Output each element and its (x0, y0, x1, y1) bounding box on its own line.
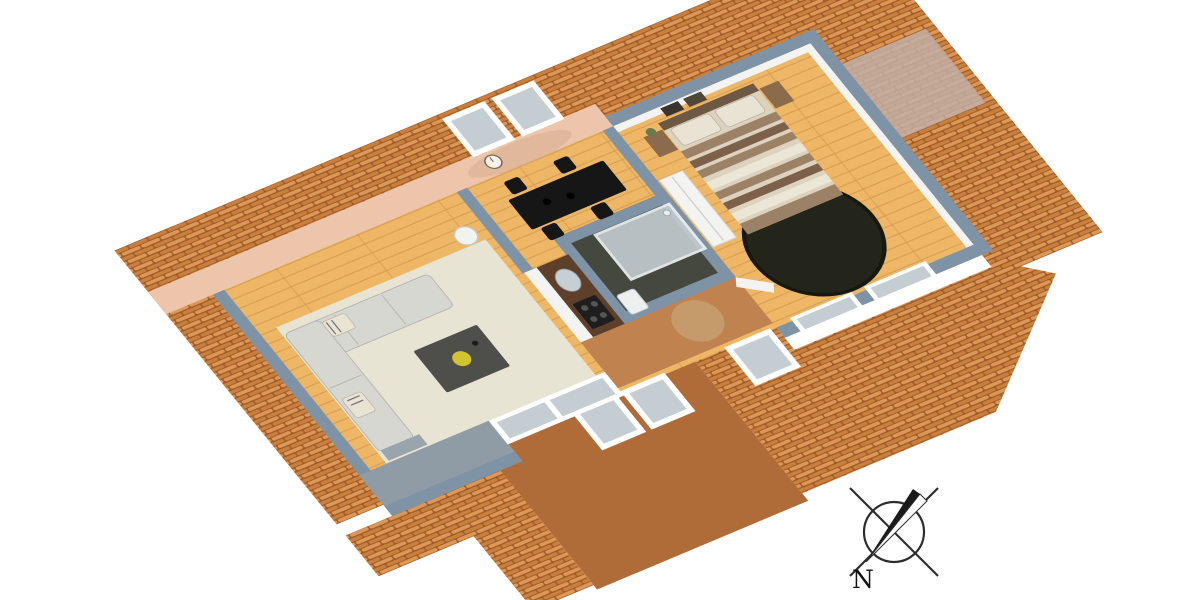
apartment-scene (115, 0, 1191, 600)
floor-plan-render: N (0, 0, 1200, 600)
floor-plan-svg: N (0, 0, 1200, 600)
compass-rose: N (850, 488, 938, 594)
compass-north-label: N (852, 565, 874, 594)
